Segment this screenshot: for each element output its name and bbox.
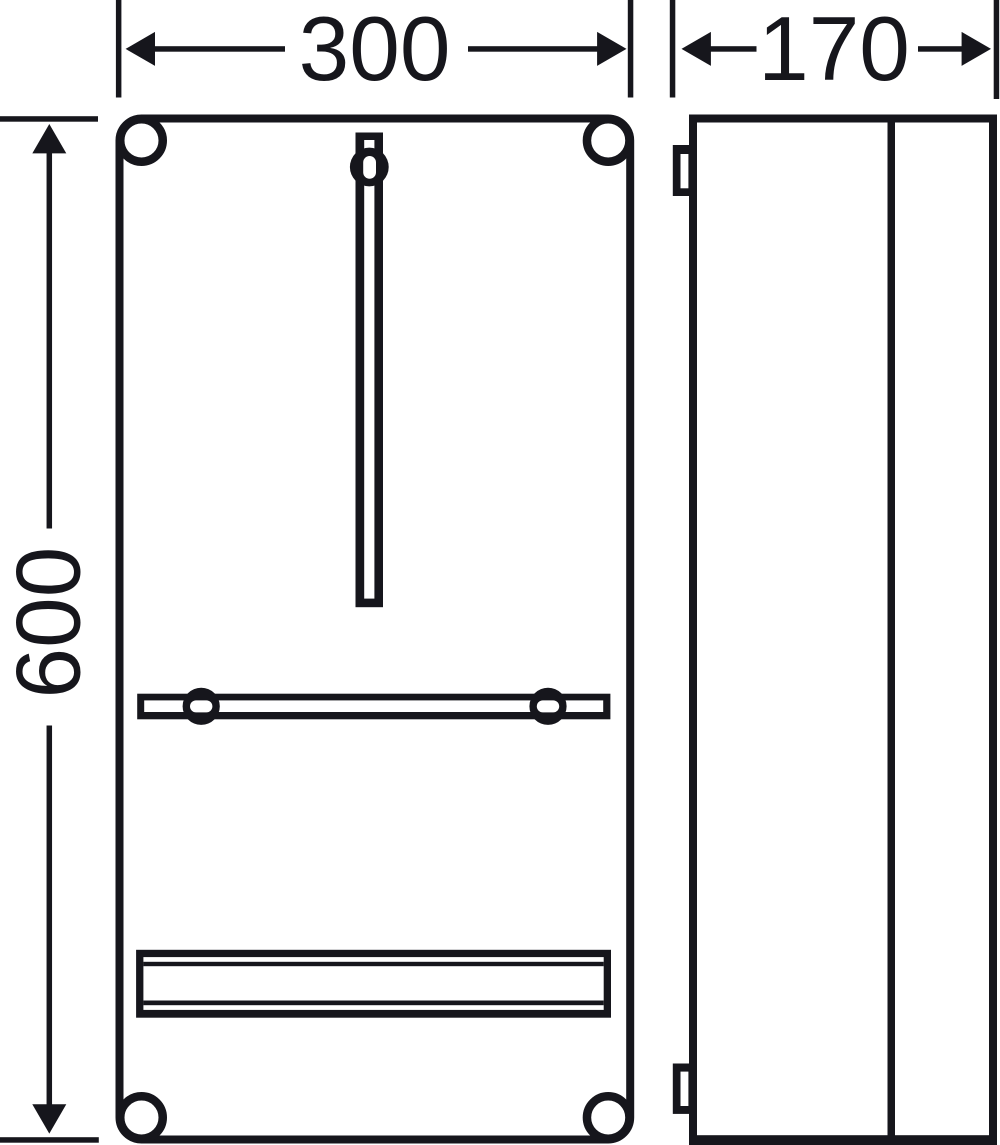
- svg-text:300: 300: [299, 0, 451, 100]
- svg-text:170: 170: [758, 0, 910, 100]
- svg-text:600: 600: [0, 547, 100, 699]
